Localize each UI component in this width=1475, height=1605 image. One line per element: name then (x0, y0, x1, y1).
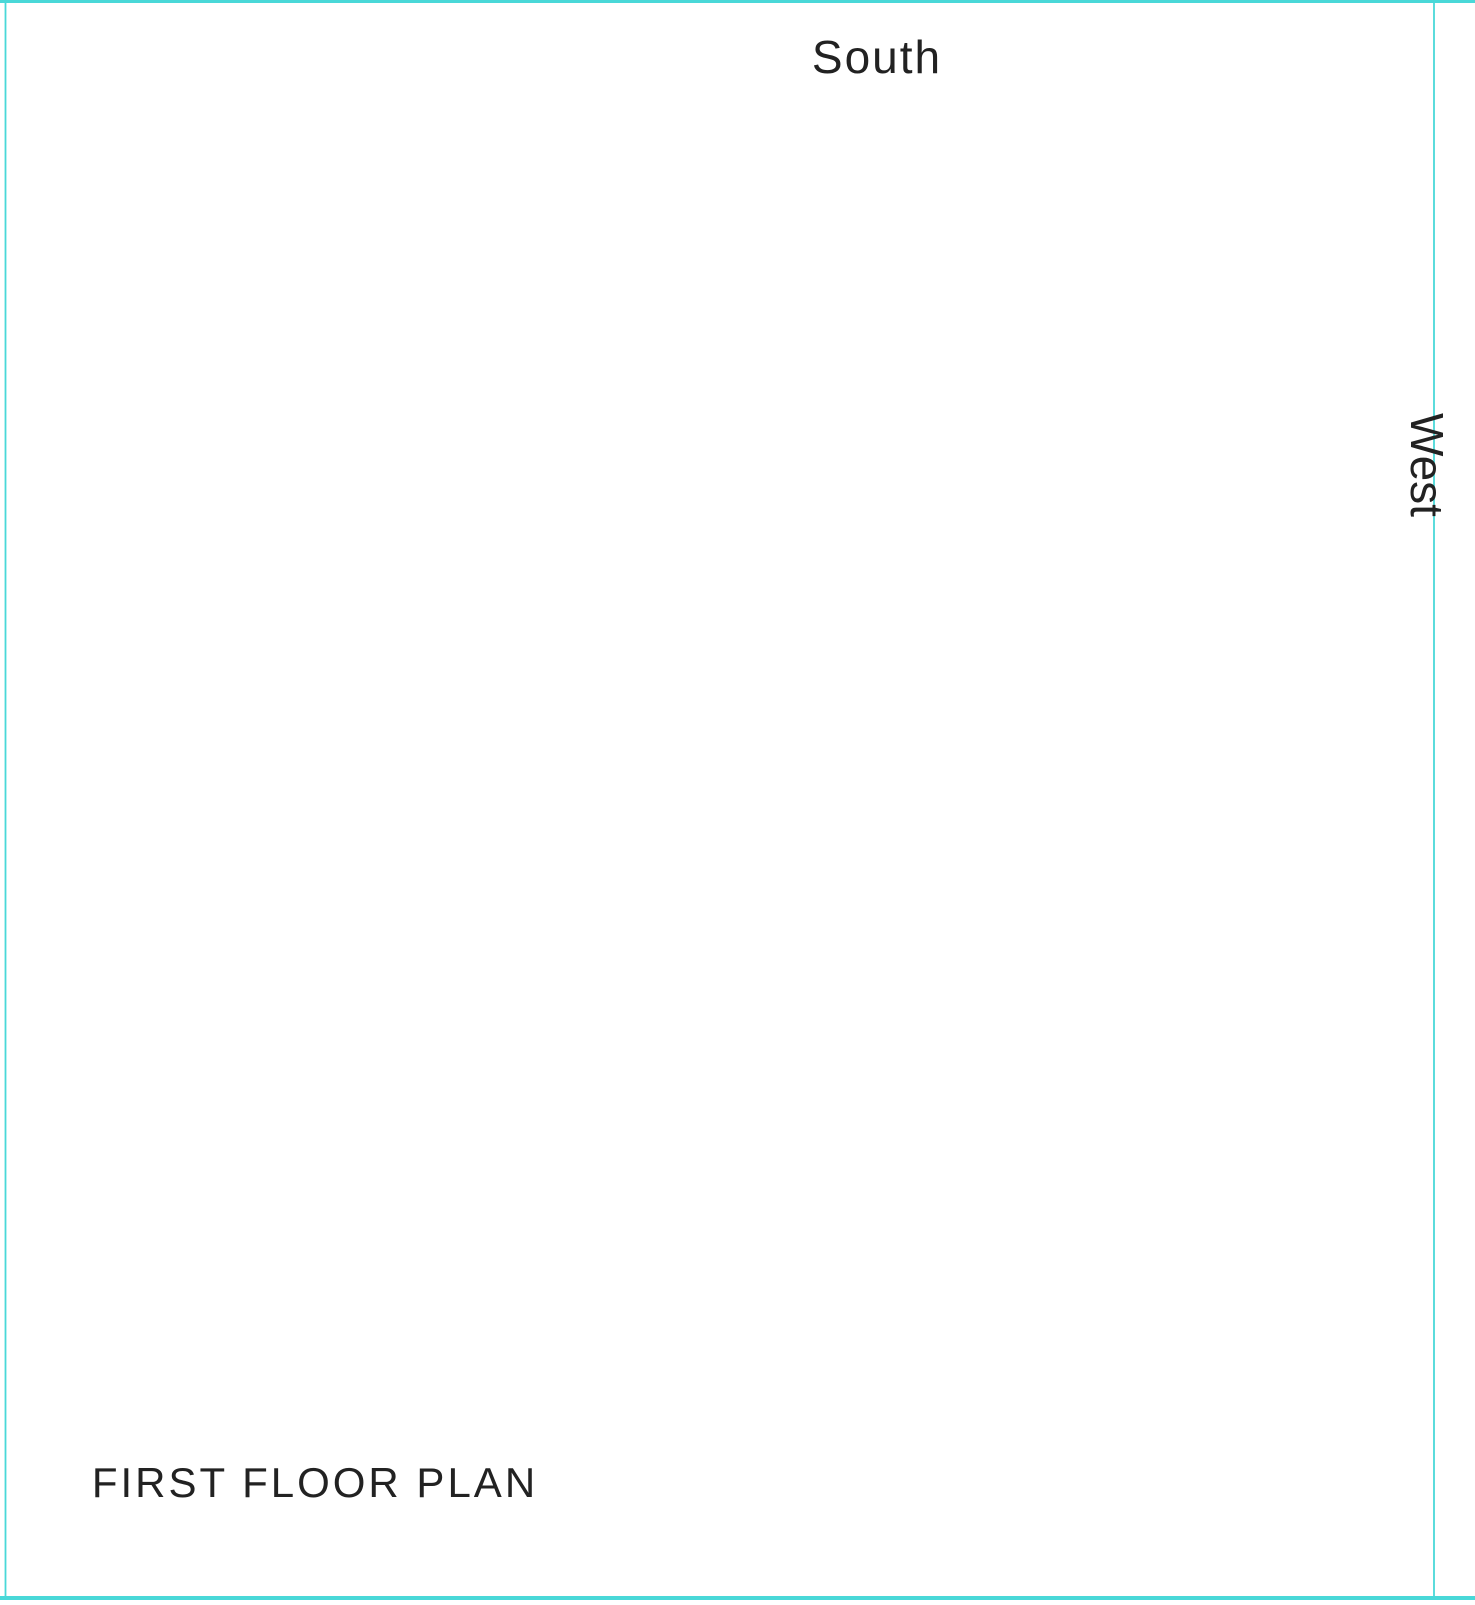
svg-text:West: West (1401, 413, 1453, 517)
svg-text:FIRST FLOOR PLAN: FIRST FLOOR PLAN (92, 1459, 538, 1506)
svg-text:South: South (812, 31, 942, 83)
